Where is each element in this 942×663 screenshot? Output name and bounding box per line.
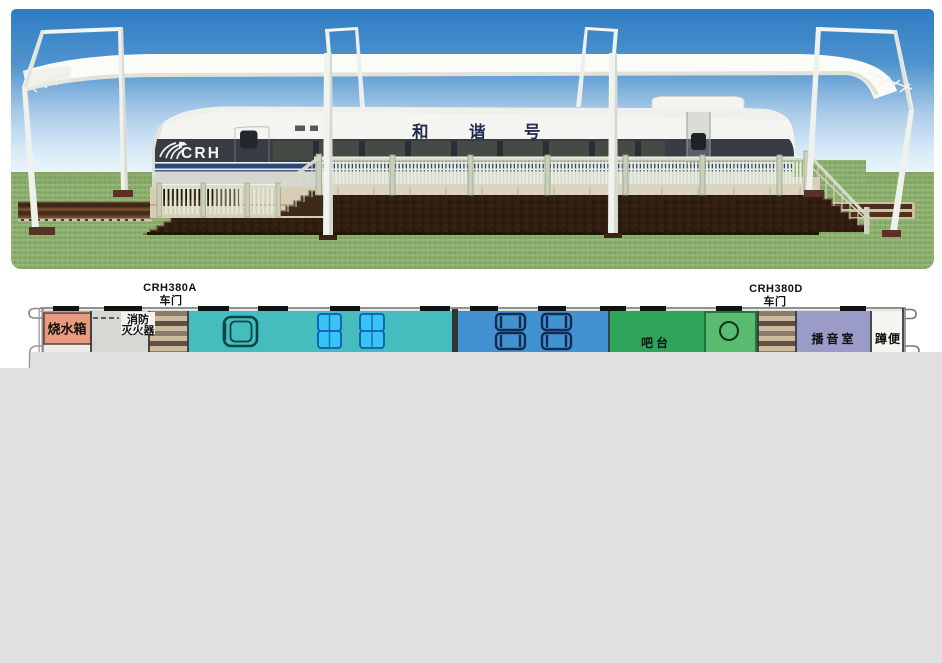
svg-text:播音室: 播音室 — [811, 331, 856, 346]
svg-text:和: 和 — [412, 123, 429, 142]
svg-text:吧台: 吧台 — [641, 335, 671, 350]
svg-text:谐: 谐 — [469, 123, 486, 142]
svg-text:蹲便: 蹲便 — [875, 331, 901, 346]
svg-text:消防: 消防 — [127, 312, 149, 326]
svg-text:CRH: CRH — [181, 145, 221, 162]
svg-text:号: 号 — [524, 123, 541, 142]
svg-text:灭火器: 灭火器 — [121, 324, 156, 337]
svg-text:烧水箱: 烧水箱 — [47, 322, 86, 337]
